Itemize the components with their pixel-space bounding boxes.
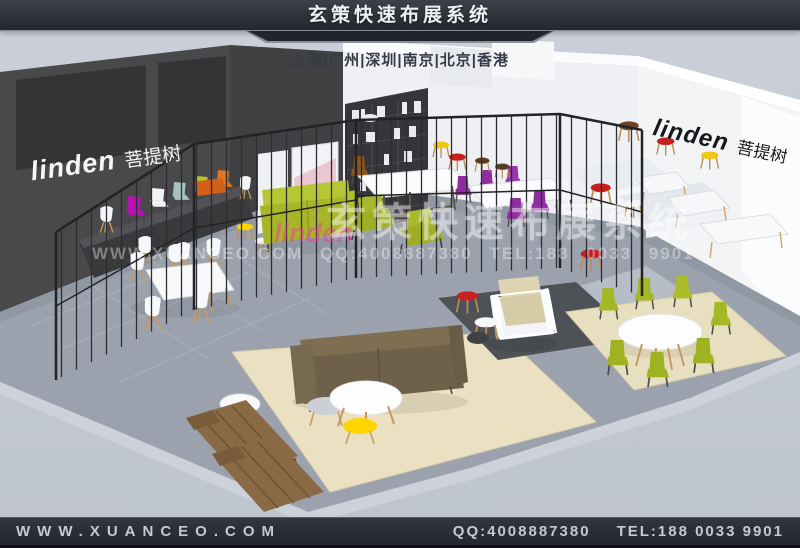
watermark-title: 玄策快速布展系统 [326,190,694,248]
cities-bar: 上海|广州|深圳|南京|北京|香港 [0,49,800,70]
footer-contact: QQ:4008887380 TEL:188 0033 9901 [453,523,784,540]
header-tab [244,30,556,43]
footer-qq: QQ:4008887380 [453,523,591,540]
footer-tel: TEL:188 0033 9901 [617,523,784,540]
dark-stool [467,332,489,344]
showroom-art [0,30,800,517]
showroom-render: 上海|广州|深圳|南京|北京|香港 linden 菩提树 linden 菩提树 … [0,30,800,517]
footer-bar: WWW.XUANCEO.COM QQ:4008887380 TEL:188 00… [0,517,800,548]
header-tab-face [246,30,554,41]
page-title: 玄策快速布展系统 [0,0,800,30]
watermark-contact: WWW.XUANCEO.COM QQ:4008887380 TEL:188 00… [92,244,695,264]
footer-website: WWW.XUANCEO.COM [16,523,281,540]
promo-image: 玄策快速布展系统 [0,0,800,548]
